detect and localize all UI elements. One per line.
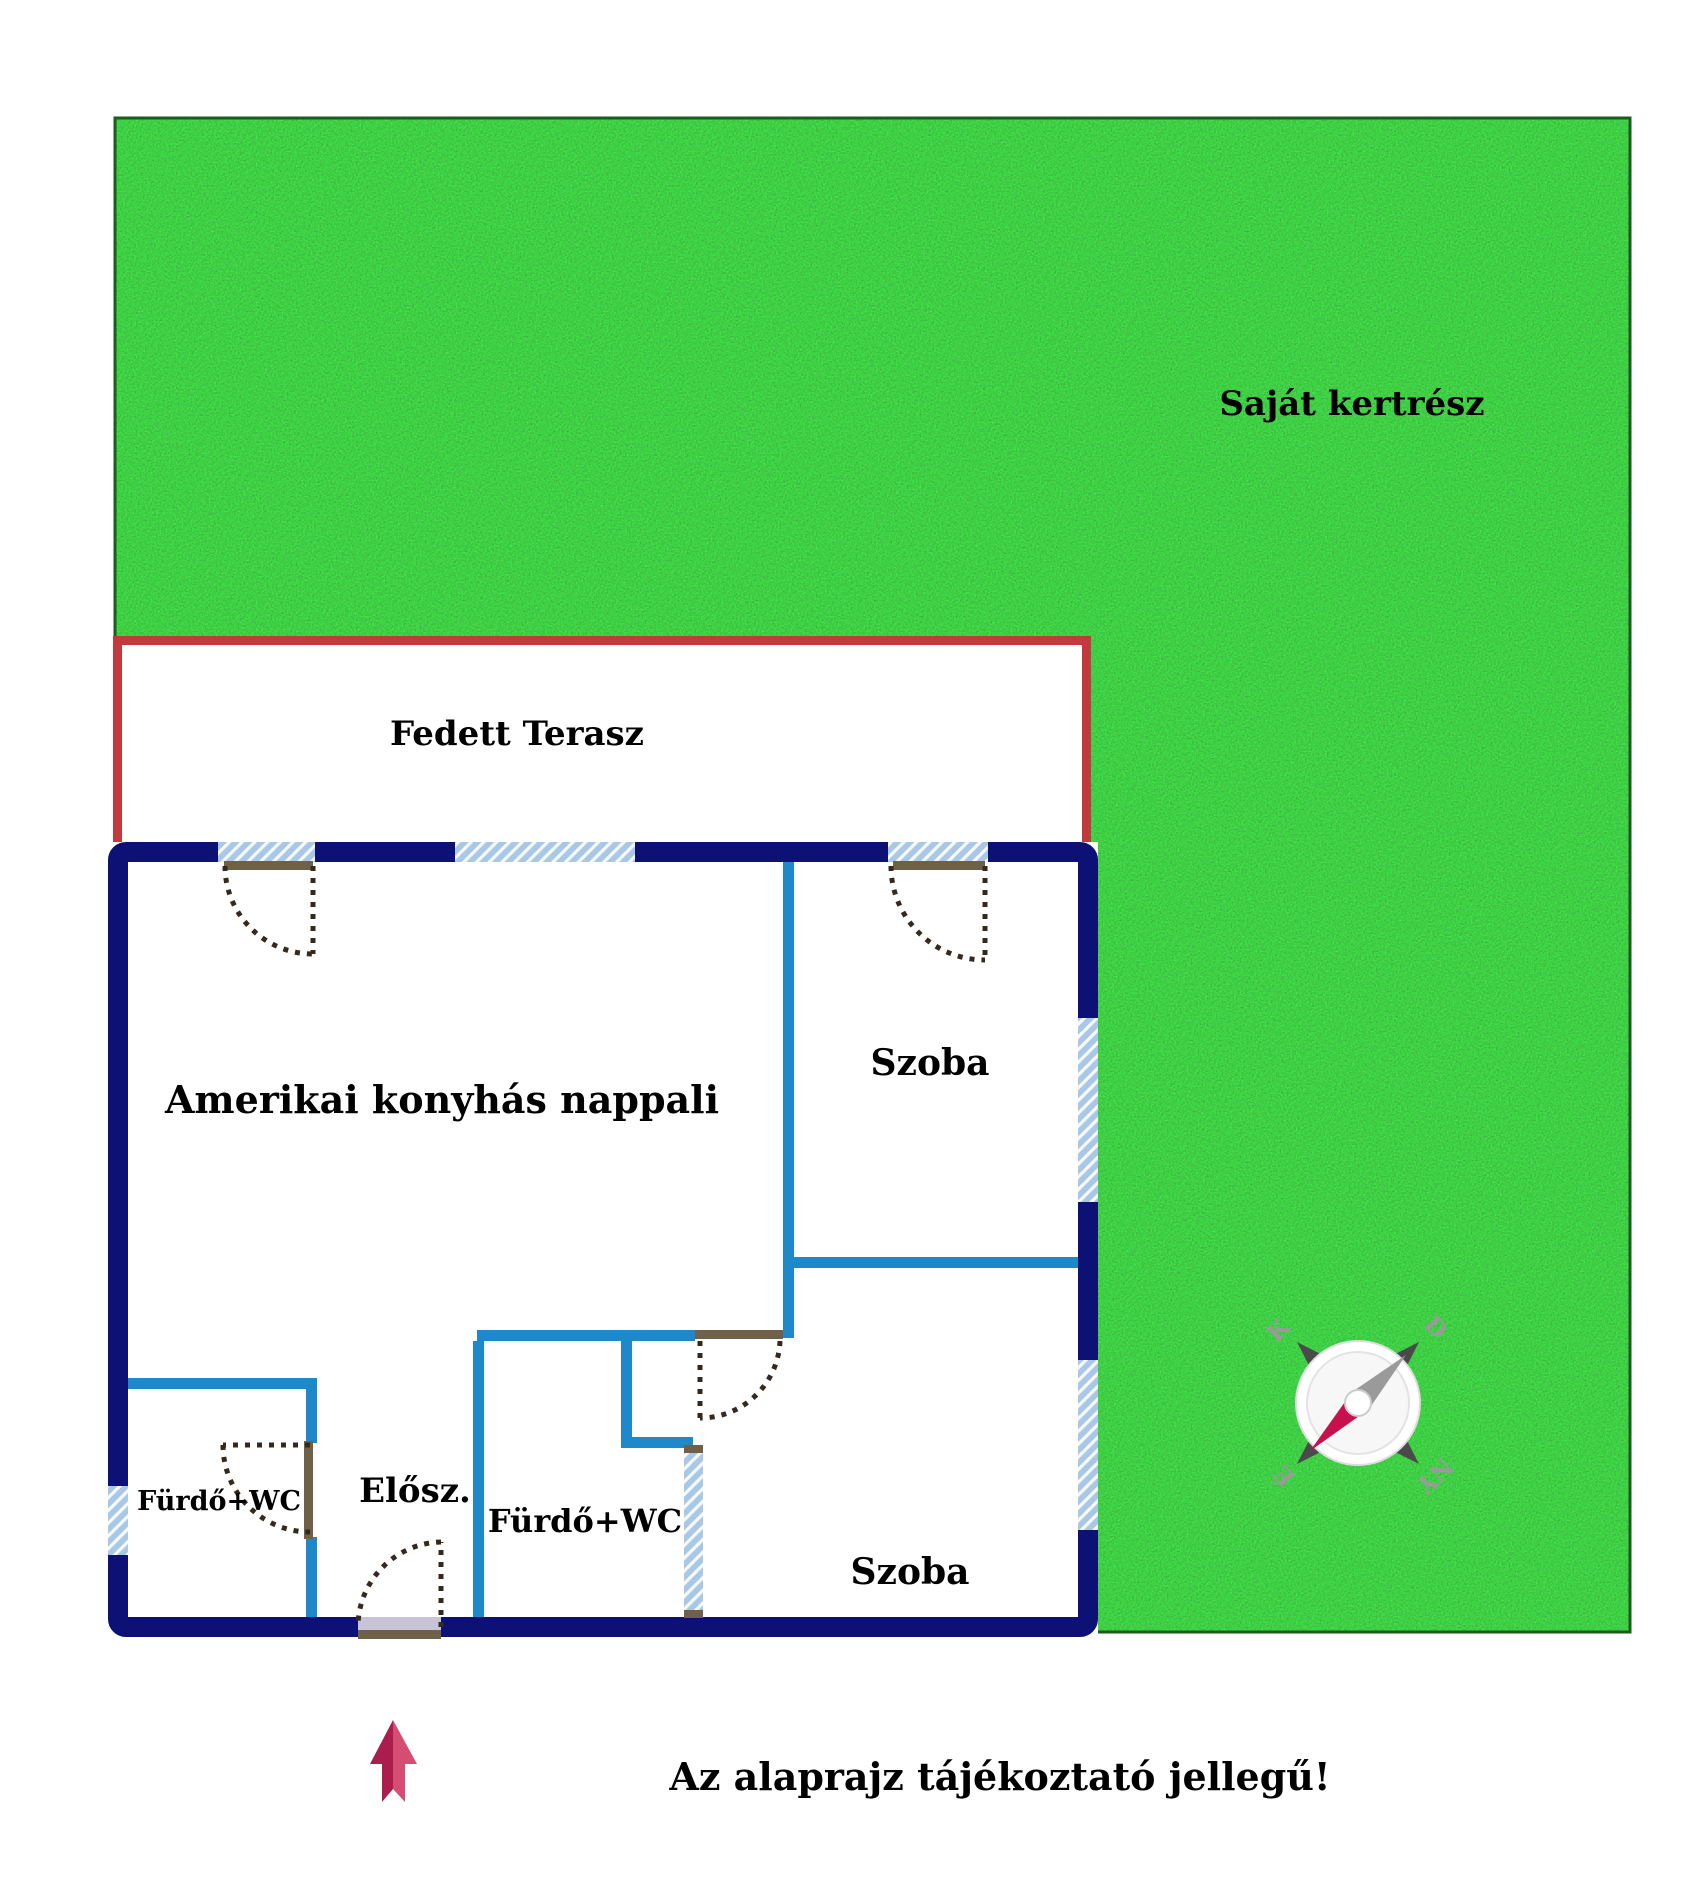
terrace-label: Fedett Terasz: [390, 714, 644, 754]
wall-bath-left-right-lower: [306, 1537, 317, 1617]
floorplan-canvas: Saját kertrész K D É NY Fedett Terasz: [0, 0, 1700, 1880]
window-top-wall: [455, 842, 635, 862]
compass-hub: [1345, 1390, 1371, 1416]
glass-partition-cap-top: [684, 1445, 703, 1453]
door-bath-left-leaf: [304, 1441, 313, 1539]
window-right-wall-lower: [1078, 1360, 1098, 1530]
door-terrace-left-lintel: [224, 861, 313, 870]
wall-bath-middle-inner-vertical: [621, 1341, 632, 1448]
disclaimer-note: Az alaprajz tájékoztató jellegű!: [668, 1754, 1330, 1799]
door-room-top-lintel: [893, 861, 985, 870]
wall-bath-middle-top: [477, 1330, 695, 1341]
wall-between-rooms: [794, 1257, 1078, 1268]
bath-left-label: Fürdő+WC: [137, 1486, 301, 1517]
window-right-wall-upper: [1078, 1018, 1098, 1202]
floorplan-page: Saját kertrész K D É NY Fedett Terasz: [0, 0, 1700, 1880]
north-arrow-icon-light: [393, 1720, 417, 1802]
footer: Az alaprajz tájékoztató jellegű!: [370, 1720, 1331, 1802]
garden-label: Saját kertrész: [1219, 384, 1484, 424]
room-bottom-label: Szoba: [851, 1551, 970, 1593]
living-room-label: Amerikai konyhás nappali: [164, 1077, 719, 1122]
wall-bath-middle-inner-horizontal: [621, 1437, 693, 1448]
bath-middle-label: Fürdő+WC: [488, 1502, 682, 1540]
wall-living-room-divider: [783, 862, 794, 1338]
apartment: Amerikai konyhás nappali Szoba Szoba Für…: [108, 842, 1098, 1639]
door-terrace-left-opening: [218, 842, 315, 862]
wall-hallway-right: [473, 1341, 484, 1617]
glass-partition-cap-bottom: [684, 1610, 703, 1618]
window-left-wall: [108, 1486, 128, 1555]
hallway-label: Elősz.: [359, 1471, 471, 1511]
wall-bath-left-right-upper: [306, 1378, 317, 1443]
door-room-bottom-lintel: [695, 1330, 783, 1339]
glass-partition-bath-middle: [684, 1453, 703, 1617]
terrace: Fedett Terasz: [118, 641, 1087, 853]
door-room-top-opening: [888, 842, 988, 862]
room-top-label: Szoba: [871, 1042, 990, 1084]
wall-bath-left-top: [128, 1378, 316, 1389]
entrance-door-bar: [358, 1630, 441, 1639]
north-arrow-icon: [370, 1720, 393, 1802]
